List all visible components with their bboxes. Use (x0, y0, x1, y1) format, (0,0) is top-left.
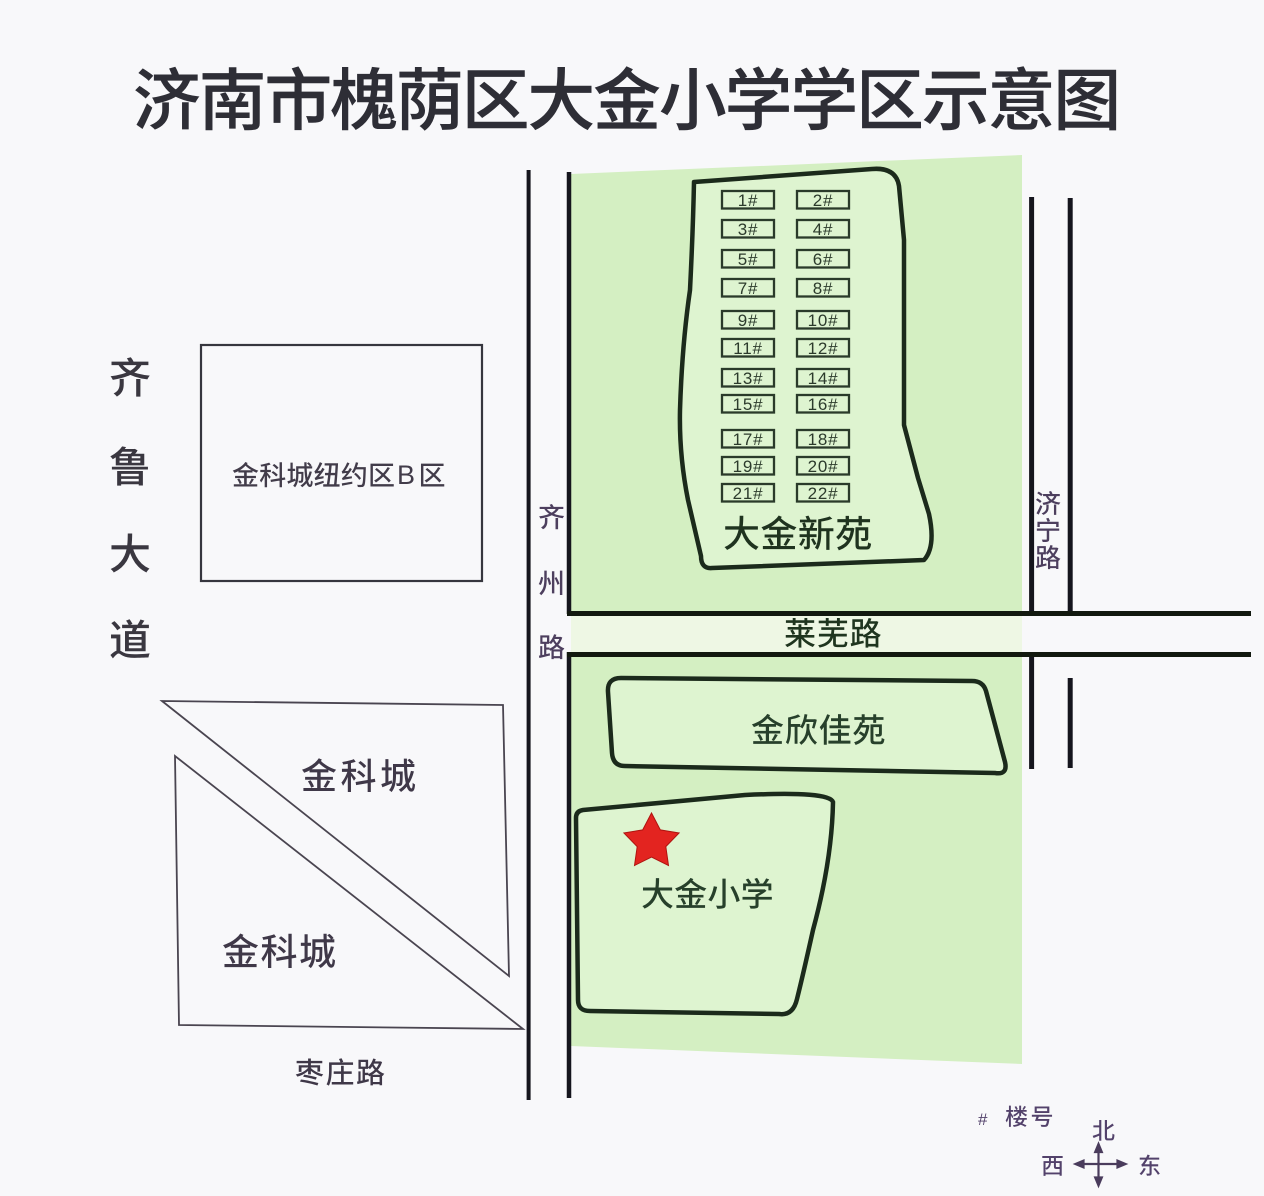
svg-text:3#: 3# (738, 220, 759, 239)
svg-text:11#: 11# (733, 339, 763, 358)
svg-text:15#: 15# (733, 395, 764, 414)
svg-text:16#: 16# (808, 395, 839, 414)
svg-text:6#: 6# (813, 250, 834, 269)
svg-text:17#: 17# (733, 430, 764, 449)
svg-text:14#: 14# (808, 369, 839, 388)
svg-text:8#: 8# (813, 279, 834, 298)
svg-text:22#: 22# (808, 484, 839, 503)
svg-text:4#: 4# (813, 220, 834, 239)
svg-text:1#: 1# (738, 191, 759, 210)
svg-text:B: B (397, 460, 415, 490)
svg-text:5#: 5# (738, 250, 759, 269)
svg-text:2#: 2# (813, 191, 834, 210)
svg-text:12#: 12# (808, 339, 839, 358)
svg-text:9#: 9# (738, 311, 759, 330)
svg-text:13#: 13# (733, 369, 764, 388)
svg-text:19#: 19# (733, 457, 764, 476)
svg-text:10#: 10# (808, 311, 839, 330)
svg-text:#: # (978, 1110, 988, 1129)
svg-text:7#: 7# (738, 279, 759, 298)
svg-text:20#: 20# (808, 457, 839, 476)
svg-text:21#: 21# (733, 484, 764, 503)
svg-text:18#: 18# (808, 430, 839, 449)
